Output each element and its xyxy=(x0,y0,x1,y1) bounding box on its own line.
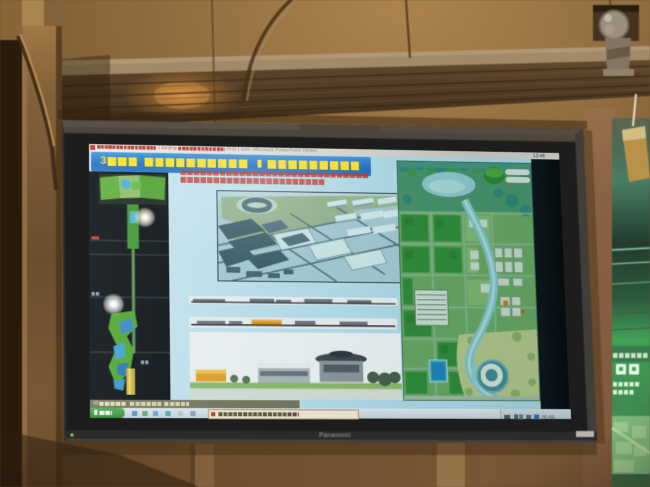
svg-text:Panasonic: Panasonic xyxy=(319,432,352,439)
